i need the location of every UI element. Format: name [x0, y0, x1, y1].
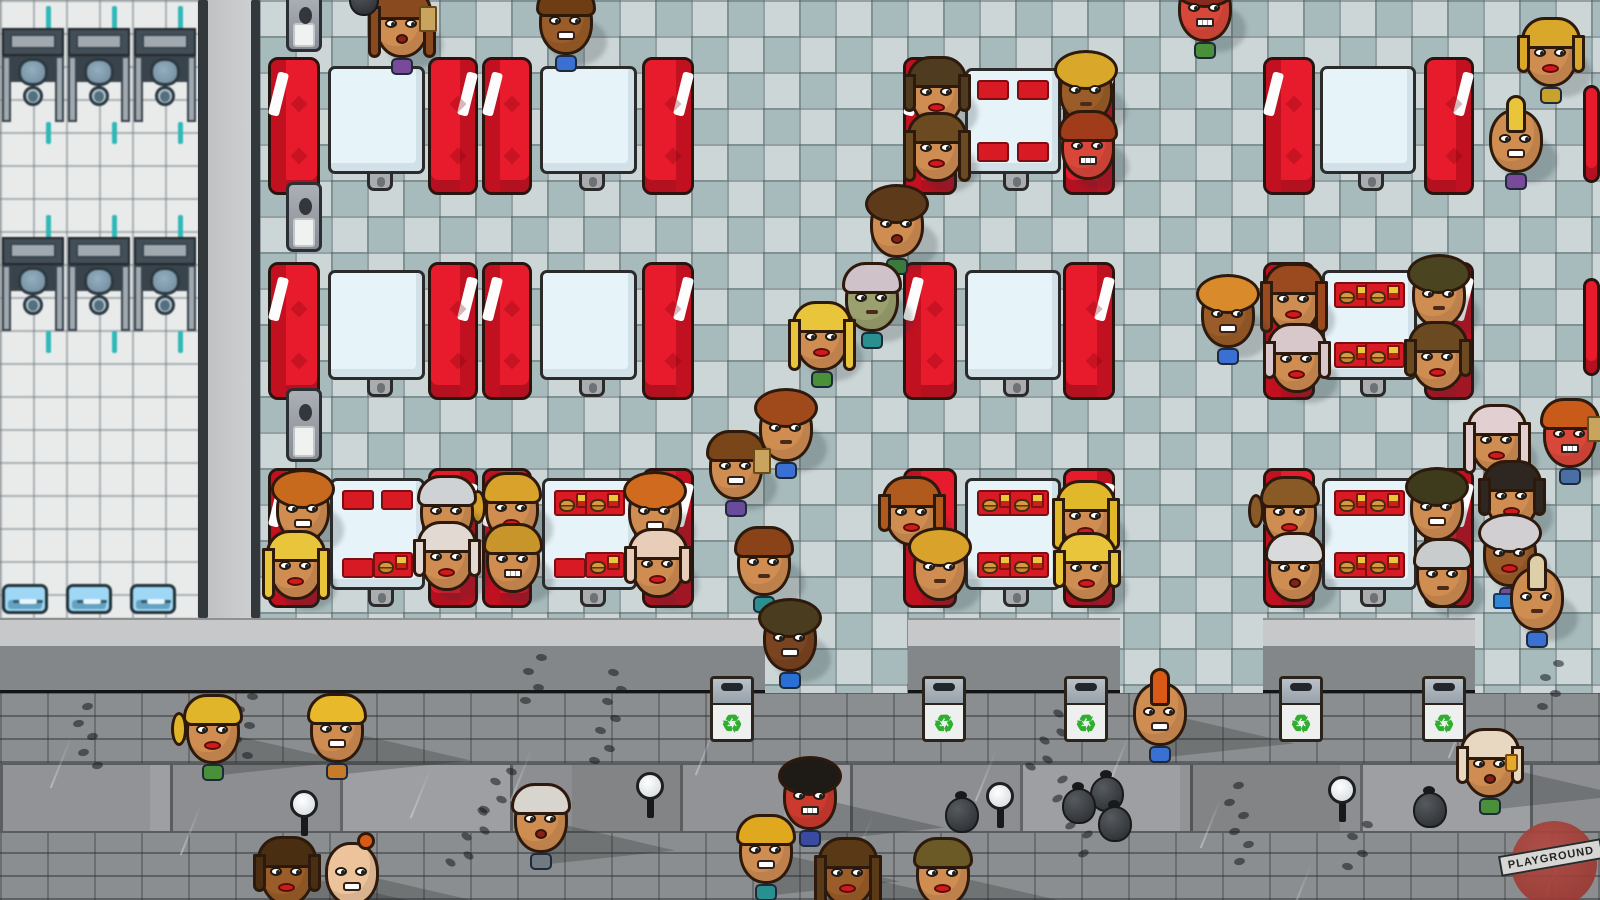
bench-seam [927, 353, 944, 370]
pupil [550, 817, 554, 822]
eye [943, 562, 955, 571]
pupil [1501, 494, 1505, 499]
eye [569, 16, 581, 25]
pupil [1237, 312, 1241, 317]
eye [923, 562, 935, 571]
pupil [1286, 357, 1290, 362]
pupil [391, 22, 395, 27]
recycle-bin[interactable]: ♻ [922, 676, 966, 742]
character[interactable] [1115, 666, 1205, 776]
burger [590, 561, 606, 574]
eye [920, 143, 932, 152]
eye [1446, 569, 1458, 578]
pupil [946, 146, 950, 151]
eye [1441, 352, 1453, 361]
table-pedestal [367, 171, 393, 191]
pupil [1499, 762, 1503, 767]
eye [1231, 309, 1243, 318]
pupil [521, 506, 525, 511]
trash-can[interactable] [286, 388, 322, 462]
pupil [1526, 595, 1530, 600]
pupil [276, 870, 280, 875]
eye [516, 554, 528, 563]
hair [417, 475, 477, 507]
building-facade-top [0, 618, 259, 646]
eye [1278, 563, 1290, 572]
mouth [535, 829, 547, 839]
stall-door-post [46, 122, 51, 144]
pupil [1283, 297, 1287, 302]
mouth [1429, 368, 1446, 377]
trash-bag[interactable] [1062, 788, 1096, 824]
eye [831, 868, 843, 877]
pedestal-slot [1370, 593, 1378, 603]
character[interactable] [251, 520, 341, 630]
pupil [341, 870, 345, 875]
eye [1273, 507, 1285, 516]
character-body [1217, 348, 1239, 365]
stall-door-post [178, 122, 183, 144]
booth-bench[interactable] [642, 262, 694, 400]
character[interactable] [803, 827, 893, 900]
stall-front-inset [76, 243, 122, 258]
toilet-hole [94, 91, 104, 102]
character[interactable] [1160, 0, 1250, 72]
pupil [1559, 432, 1563, 437]
pedestal-slot [590, 593, 598, 603]
toilet-hole [94, 300, 104, 311]
mouth [1219, 324, 1237, 333]
mouth [928, 159, 945, 168]
mouth [1531, 609, 1543, 613]
pupil [926, 90, 930, 95]
street-lamp[interactable] [1328, 776, 1356, 804]
hair [814, 855, 827, 900]
hair [253, 854, 266, 892]
burger [590, 499, 606, 512]
character[interactable] [691, 420, 781, 530]
hair [624, 546, 637, 584]
trash-can-slot [299, 404, 312, 421]
eye [1421, 352, 1433, 361]
dining-table[interactable] [965, 270, 1061, 380]
character[interactable] [745, 592, 835, 702]
eye [299, 561, 311, 570]
character-body [1479, 798, 1501, 815]
character[interactable] [168, 684, 258, 794]
recycle-bin[interactable]: ♻ [710, 676, 754, 742]
character[interactable] [1042, 522, 1132, 632]
pupil [1525, 137, 1529, 142]
mouth [328, 739, 346, 748]
mouth [287, 577, 304, 586]
hair [1054, 50, 1118, 90]
pupil [1521, 494, 1525, 499]
pupil [292, 507, 296, 512]
eye [320, 724, 332, 733]
trash-can-slot [299, 198, 312, 215]
mouth [780, 440, 792, 444]
mouth [934, 884, 951, 893]
pupil [837, 871, 841, 876]
trash-can-slot [299, 7, 312, 24]
mouth [1437, 586, 1449, 590]
pupil [1077, 144, 1081, 149]
stall-door-post [112, 6, 117, 30]
pupil [819, 794, 823, 799]
bench-seam [504, 148, 521, 165]
pedestal-slot [378, 593, 386, 603]
stall-side-wall [121, 265, 130, 331]
eye [340, 724, 352, 733]
character[interactable] [1250, 522, 1340, 632]
eye [1440, 502, 1452, 511]
eye [335, 867, 347, 876]
bin-slot [1290, 683, 1312, 691]
pupil [1505, 137, 1509, 142]
paper-bag-item [753, 448, 771, 474]
mouth [504, 569, 522, 578]
hair [1459, 339, 1472, 377]
eye [940, 143, 952, 152]
eye [1422, 289, 1434, 298]
hair [679, 546, 692, 584]
pupil [725, 464, 729, 469]
eye [1089, 511, 1101, 520]
eye [1090, 563, 1102, 572]
mouth [1542, 64, 1559, 73]
hair [736, 814, 796, 846]
pedestal-slot [1013, 383, 1021, 393]
pedestal-slot [589, 177, 597, 187]
trash-bag[interactable] [1413, 792, 1447, 828]
character-body [1526, 631, 1548, 648]
toilet[interactable] [150, 267, 180, 295]
hair [1572, 35, 1585, 73]
stall-door-post [178, 215, 183, 239]
pupil [1194, 6, 1198, 11]
mouth [1151, 722, 1169, 731]
hair [788, 319, 801, 371]
burger [1370, 561, 1386, 574]
character-body [779, 672, 801, 689]
hair [843, 319, 856, 371]
hair [1108, 550, 1121, 588]
character[interactable] [468, 513, 558, 623]
eye [739, 461, 751, 470]
hair [511, 783, 571, 815]
eye [270, 867, 282, 876]
booth-bench[interactable] [268, 262, 320, 400]
booth-bench[interactable] [482, 262, 532, 400]
character[interactable] [521, 0, 611, 85]
street-lamp[interactable] [290, 790, 318, 818]
eye [767, 557, 779, 566]
character[interactable] [895, 521, 985, 631]
eye [1540, 592, 1552, 601]
mouth [757, 860, 775, 869]
pupil [522, 557, 526, 562]
booth-bench[interactable] [1063, 262, 1115, 400]
pupil [946, 90, 950, 95]
eye [1553, 429, 1565, 438]
sink[interactable] [66, 584, 112, 614]
eye [405, 19, 417, 28]
toilet[interactable] [150, 58, 180, 86]
character-body [1505, 173, 1527, 190]
hair [1527, 553, 1547, 591]
pedestal-slot [1013, 593, 1021, 603]
bin-slot [1075, 683, 1097, 691]
mouth [1561, 444, 1579, 453]
eye [769, 845, 781, 854]
pupil [575, 19, 579, 24]
pupil [1306, 357, 1310, 362]
pupil [1284, 566, 1288, 571]
eye [813, 791, 825, 800]
hair [1517, 35, 1530, 73]
burger [559, 499, 575, 512]
booth-bench[interactable] [428, 262, 478, 400]
stall-door-post [46, 6, 51, 30]
pupil [1426, 505, 1430, 510]
hair [878, 494, 891, 532]
character-body [1194, 42, 1216, 59]
stall-side-wall [134, 56, 143, 122]
character[interactable] [613, 518, 703, 628]
character[interactable] [1492, 551, 1582, 661]
character[interactable] [307, 826, 397, 900]
character-body [755, 884, 777, 900]
character[interactable] [357, 0, 447, 88]
street-lamp[interactable] [986, 782, 1014, 810]
hair [908, 527, 972, 567]
pupil [745, 464, 749, 469]
hair [903, 130, 916, 182]
paper-bag-item [1587, 416, 1600, 442]
sink[interactable] [130, 584, 176, 614]
pupil [811, 335, 815, 340]
eye [1554, 48, 1566, 57]
pupil [411, 22, 415, 27]
table-pedestal [1360, 377, 1386, 397]
pupil [222, 728, 226, 733]
table-pedestal [1003, 377, 1029, 397]
table-pedestal [1003, 587, 1029, 607]
stall-front-inset [10, 34, 56, 49]
pupil [1097, 144, 1101, 149]
hair [307, 693, 367, 725]
pupil [1540, 51, 1544, 56]
bench-seam [291, 148, 308, 165]
pupil [1075, 88, 1079, 93]
booth-bench[interactable] [642, 57, 694, 195]
trash-can-front [293, 23, 315, 47]
mouth [839, 884, 856, 893]
pupil [1075, 514, 1079, 519]
mouth [204, 741, 221, 750]
toilet[interactable] [84, 267, 114, 295]
sink[interactable] [2, 584, 48, 614]
eye [661, 559, 673, 568]
eye [773, 633, 785, 642]
recycle-icon: ♻ [713, 713, 751, 737]
mouth [1484, 774, 1496, 784]
eye [1495, 491, 1507, 500]
dining-table[interactable] [328, 270, 425, 380]
character[interactable] [1043, 100, 1133, 210]
character[interactable] [721, 804, 811, 900]
pupil [1506, 438, 1510, 443]
dining-table[interactable] [540, 270, 637, 380]
trash-can[interactable] [286, 182, 322, 252]
eye [196, 725, 208, 734]
eye [515, 503, 527, 512]
character[interactable] [1252, 313, 1342, 423]
pupil [1299, 510, 1303, 515]
toilet-hole [160, 91, 170, 102]
booth-bench[interactable] [268, 57, 320, 195]
bin-slot [721, 683, 743, 691]
mouth [866, 310, 878, 314]
eye [279, 561, 291, 570]
pedestal-slot [1368, 177, 1376, 187]
stall-door-post [46, 215, 51, 239]
pupil [1095, 88, 1099, 93]
drink-item [1505, 754, 1518, 772]
bench-seam [504, 301, 521, 318]
stall-side-wall [55, 265, 64, 331]
pedestal-slot [1013, 177, 1021, 187]
pupil [305, 564, 309, 569]
table-pedestal [1360, 587, 1386, 607]
bench-seam [504, 96, 521, 113]
hair [413, 539, 426, 577]
pupil [831, 335, 835, 340]
pupil [436, 555, 440, 560]
character[interactable] [1471, 93, 1561, 203]
stall-side-wall [55, 56, 64, 122]
booth-bench[interactable] [1263, 57, 1315, 195]
eye [915, 507, 927, 516]
pupil [664, 509, 668, 514]
stall-door-post [178, 6, 183, 30]
toilet[interactable] [18, 58, 48, 86]
pupil [647, 562, 651, 567]
mouth [649, 575, 666, 584]
eye [495, 503, 507, 512]
eye [496, 554, 508, 563]
pupil [1546, 595, 1550, 600]
pupil [906, 222, 910, 227]
stall-door-post [112, 215, 117, 239]
eye [789, 423, 801, 432]
hair [1058, 110, 1118, 142]
eye [793, 633, 805, 642]
character-head [325, 842, 379, 900]
table-pedestal [368, 587, 394, 607]
eye [900, 219, 912, 228]
empty-tray[interactable] [554, 558, 586, 578]
pupil [326, 727, 330, 732]
character[interactable] [292, 683, 382, 793]
hair [869, 855, 882, 900]
booth-bench[interactable] [1424, 57, 1474, 195]
dining-table[interactable] [1320, 66, 1416, 174]
toilet-hole [28, 91, 38, 102]
hair [262, 548, 275, 600]
mouth [727, 476, 745, 485]
eye [286, 504, 298, 513]
paper-bag-item [419, 6, 437, 32]
mouth [396, 34, 408, 44]
eye [1280, 354, 1292, 363]
toilet[interactable] [18, 267, 48, 295]
pupil [1452, 572, 1456, 577]
street-lamp[interactable] [636, 772, 664, 800]
stall-side-wall [2, 265, 11, 331]
burger [1370, 351, 1386, 364]
pupil [921, 510, 925, 515]
mouth [934, 579, 946, 583]
mouth [438, 568, 455, 577]
hair [1263, 341, 1276, 379]
recycle-icon: ♻ [925, 713, 963, 737]
recycle-bin[interactable]: ♻ [1279, 676, 1323, 742]
eye [1493, 759, 1505, 768]
bench-seam [291, 301, 308, 318]
booth-bench[interactable] [1583, 278, 1600, 376]
bin-slot [1433, 683, 1455, 691]
pupil [1304, 566, 1308, 571]
mouth [1078, 579, 1095, 588]
eye [1298, 563, 1310, 572]
pupil [799, 636, 803, 641]
hair [1404, 339, 1417, 377]
hair [171, 712, 187, 746]
pedestal-slot [377, 383, 385, 393]
eye [1534, 48, 1546, 57]
mouth [813, 348, 830, 357]
character[interactable] [898, 827, 988, 900]
hair [865, 184, 929, 224]
toilet-hole [28, 300, 38, 311]
stall-door-post [112, 122, 117, 144]
recycle-bin[interactable]: ♻ [1064, 676, 1108, 742]
character-body [1149, 746, 1171, 763]
toilet[interactable] [84, 58, 114, 86]
pedestal-slot [377, 177, 385, 187]
table-pedestal [580, 587, 606, 607]
table-pedestal [1358, 171, 1384, 191]
trash-bag[interactable] [1098, 806, 1132, 842]
eye [1071, 141, 1083, 150]
eye [805, 332, 817, 341]
character[interactable] [1445, 718, 1535, 828]
character[interactable] [1398, 528, 1488, 638]
eye [1297, 294, 1309, 303]
pupil [1169, 710, 1173, 715]
eye [1500, 435, 1512, 444]
game-scene: PLAYGROUND ♻♻♻♻♻ [0, 0, 1600, 900]
trash-can[interactable] [286, 0, 322, 52]
character-body [1559, 468, 1581, 485]
pupil [1446, 505, 1450, 510]
pupil [1428, 292, 1432, 297]
eye [1573, 429, 1585, 438]
eye [946, 868, 958, 877]
character[interactable] [496, 773, 586, 883]
